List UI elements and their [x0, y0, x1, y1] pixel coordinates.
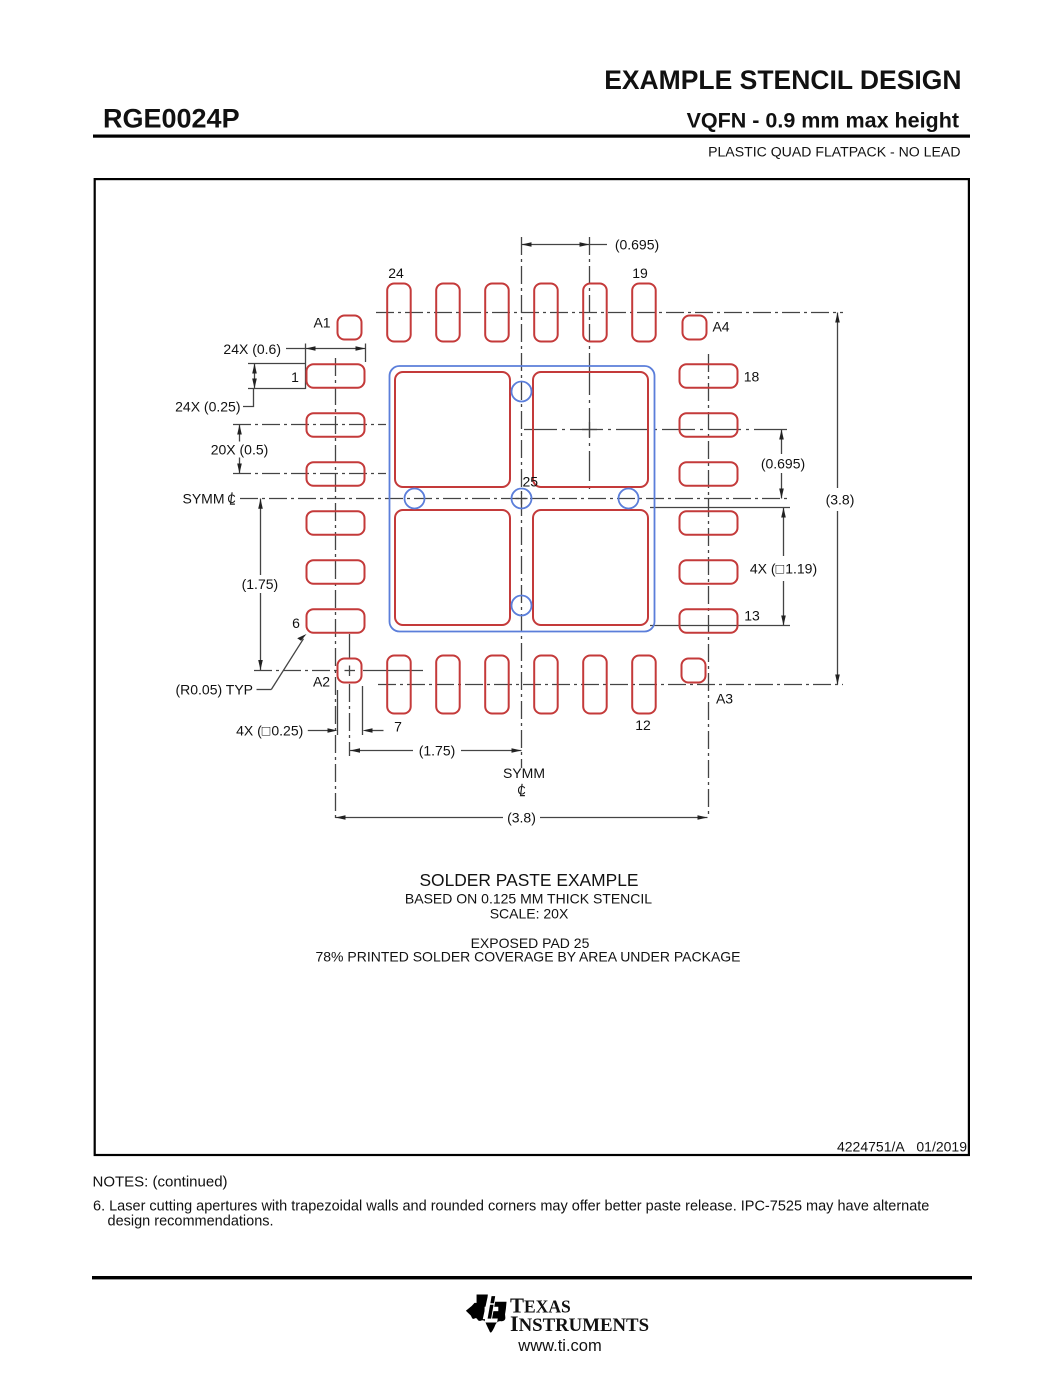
- svg-text:4X (□ 0.25): 4X (□ 0.25): [236, 723, 303, 739]
- svg-text:19: 19: [632, 265, 648, 281]
- svg-text:13: 13: [744, 608, 760, 624]
- svg-text:(R0.05) TYP: (R0.05) TYP: [175, 681, 253, 697]
- svg-text:www.ti.com: www.ti.com: [517, 1337, 601, 1355]
- svg-text:1: 1: [291, 369, 299, 385]
- svg-text:4X (□ 1.19): 4X (□ 1.19): [750, 561, 817, 577]
- svg-text:24X (0.6): 24X (0.6): [223, 341, 281, 357]
- svg-text:(1.75): (1.75): [242, 576, 279, 592]
- svg-text:RGE0024P: RGE0024P: [103, 104, 240, 134]
- svg-text:TEXAS: TEXAS: [510, 1294, 571, 1318]
- svg-text:SCALE: 20X: SCALE: 20X: [490, 906, 569, 922]
- svg-text:design recommendations.: design recommendations.: [108, 1213, 274, 1229]
- svg-text:12: 12: [635, 717, 651, 733]
- svg-text:6: 6: [292, 615, 300, 631]
- svg-text:SYMM: SYMM: [183, 491, 225, 507]
- svg-text:BASED ON 0.125 MM THICK STENCI: BASED ON 0.125 MM THICK STENCIL: [405, 891, 652, 907]
- svg-text:NOTES: (continued): NOTES: (continued): [93, 1174, 228, 1191]
- svg-text:(0.695): (0.695): [615, 236, 659, 252]
- svg-text:24X (0.25): 24X (0.25): [175, 398, 240, 414]
- svg-text:25: 25: [523, 474, 539, 490]
- svg-text:A2: A2: [313, 674, 330, 690]
- svg-text:VQFN - 0.9 mm max height: VQFN - 0.9 mm max height: [687, 109, 959, 133]
- svg-text:20X (0.5): 20X (0.5): [211, 442, 269, 458]
- svg-text:24: 24: [388, 265, 404, 281]
- svg-text:7: 7: [394, 719, 402, 735]
- svg-text:SOLDER PASTE EXAMPLE: SOLDER PASTE EXAMPLE: [419, 870, 638, 890]
- svg-text:EXAMPLE STENCIL DESIGN: EXAMPLE STENCIL DESIGN: [604, 65, 961, 95]
- svg-text:(0.695): (0.695): [761, 456, 805, 472]
- svg-text:(1.75): (1.75): [419, 742, 456, 758]
- svg-text:SYMM: SYMM: [503, 765, 545, 781]
- svg-text:A1: A1: [313, 315, 330, 331]
- svg-text:A4: A4: [712, 319, 729, 335]
- svg-text:6. Laser cutting apertures wit: 6. Laser cutting apertures with trapezoi…: [93, 1199, 929, 1215]
- svg-text:4224751/A 01/2019: 4224751/A 01/2019: [837, 1139, 967, 1155]
- svg-text:INSTRUMENTS: INSTRUMENTS: [510, 1311, 649, 1336]
- svg-text:A3: A3: [716, 691, 733, 707]
- svg-text:(3.8): (3.8): [507, 810, 536, 826]
- svg-text:18: 18: [744, 369, 760, 385]
- svg-text:78% PRINTED SOLDER COVERAGE BY: 78% PRINTED SOLDER COVERAGE BY AREA UNDE…: [315, 949, 740, 965]
- svg-text:PLASTIC QUAD FLATPACK - NO LEA: PLASTIC QUAD FLATPACK - NO LEAD: [708, 144, 960, 160]
- svg-text:(3.8): (3.8): [826, 492, 855, 508]
